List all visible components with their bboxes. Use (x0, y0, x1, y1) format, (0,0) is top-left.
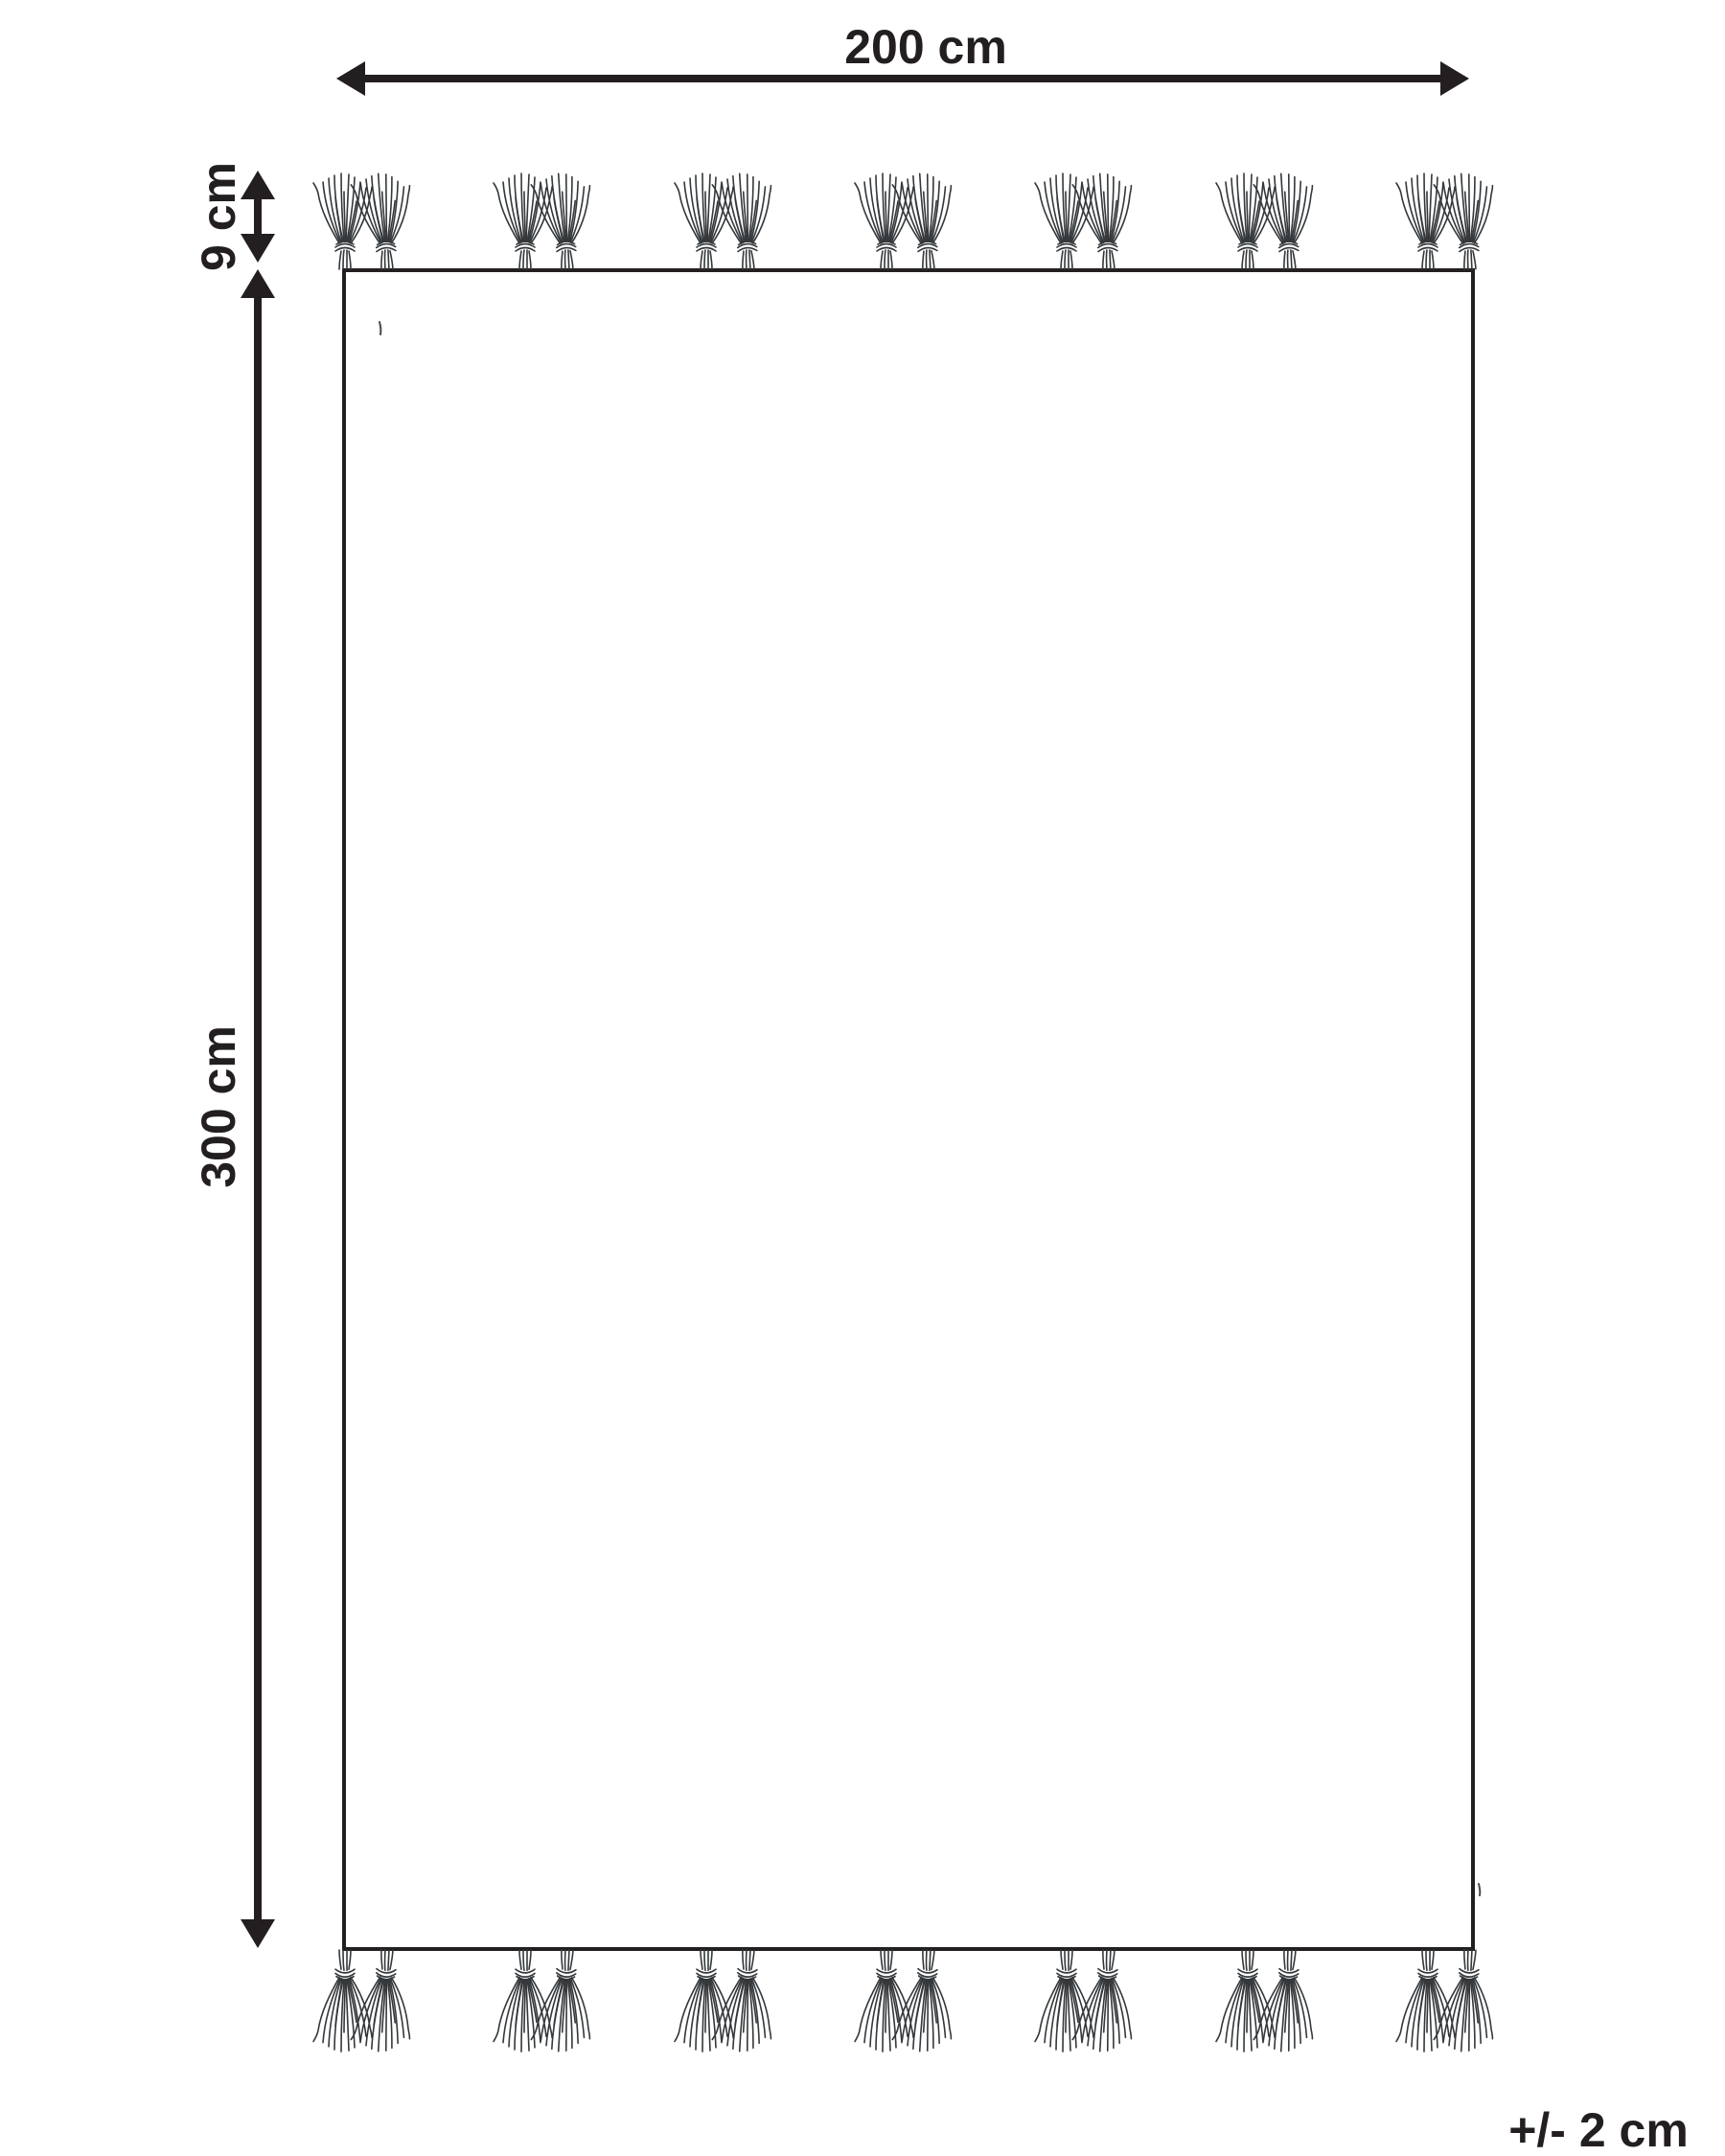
tassel-cluster-top-1 (313, 172, 414, 271)
tassel-cluster-top-6 (1216, 172, 1317, 271)
tassel-cluster-bottom-7 (1396, 1948, 1497, 2053)
tassel-cluster-top-2 (494, 172, 594, 271)
top-fringe (313, 172, 1497, 271)
tolerance-label: +/- 2 cm (1508, 2103, 1689, 2156)
tassel-cluster-bottom-2 (494, 1948, 594, 2053)
fringe-arrowhead-bottom (241, 234, 275, 263)
height-label: 300 cm (192, 1025, 245, 1188)
rug-dimension-diagram: 200 cm 9 cm 300 cm +/- 2 cm (0, 0, 1725, 2156)
width-arrowhead-right (1440, 61, 1469, 96)
tassel-cluster-top-3 (675, 172, 775, 271)
tassel-cluster-top-4 (855, 172, 955, 271)
fringe-arrow (241, 171, 275, 263)
bottom-fringe (313, 1948, 1497, 2053)
tassel-cluster-bottom-6 (1216, 1948, 1317, 2053)
height-arrowhead-top (241, 269, 275, 298)
fringe-label: 9 cm (192, 162, 245, 271)
tassel-cluster-bottom-3 (675, 1948, 775, 2053)
tassel-cluster-top-7 (1396, 172, 1497, 271)
tassel-cluster-bottom-5 (1035, 1948, 1136, 2053)
fringe-arrowhead-top (241, 171, 275, 199)
tassel-cluster-top-5 (1035, 172, 1136, 271)
stray-mark-bottom-right (1479, 1884, 1480, 1895)
height-arrowhead-bottom (241, 1919, 275, 1948)
diagram-canvas: 200 cm 9 cm 300 cm +/- 2 cm (0, 0, 1725, 2156)
tassel-cluster-bottom-4 (855, 1948, 955, 2053)
width-label: 200 cm (844, 20, 1007, 74)
rug-outline (344, 270, 1473, 1949)
tassel-cluster-bottom-1 (313, 1948, 414, 2053)
height-arrow (241, 269, 275, 1948)
width-arrowhead-left (336, 61, 365, 96)
